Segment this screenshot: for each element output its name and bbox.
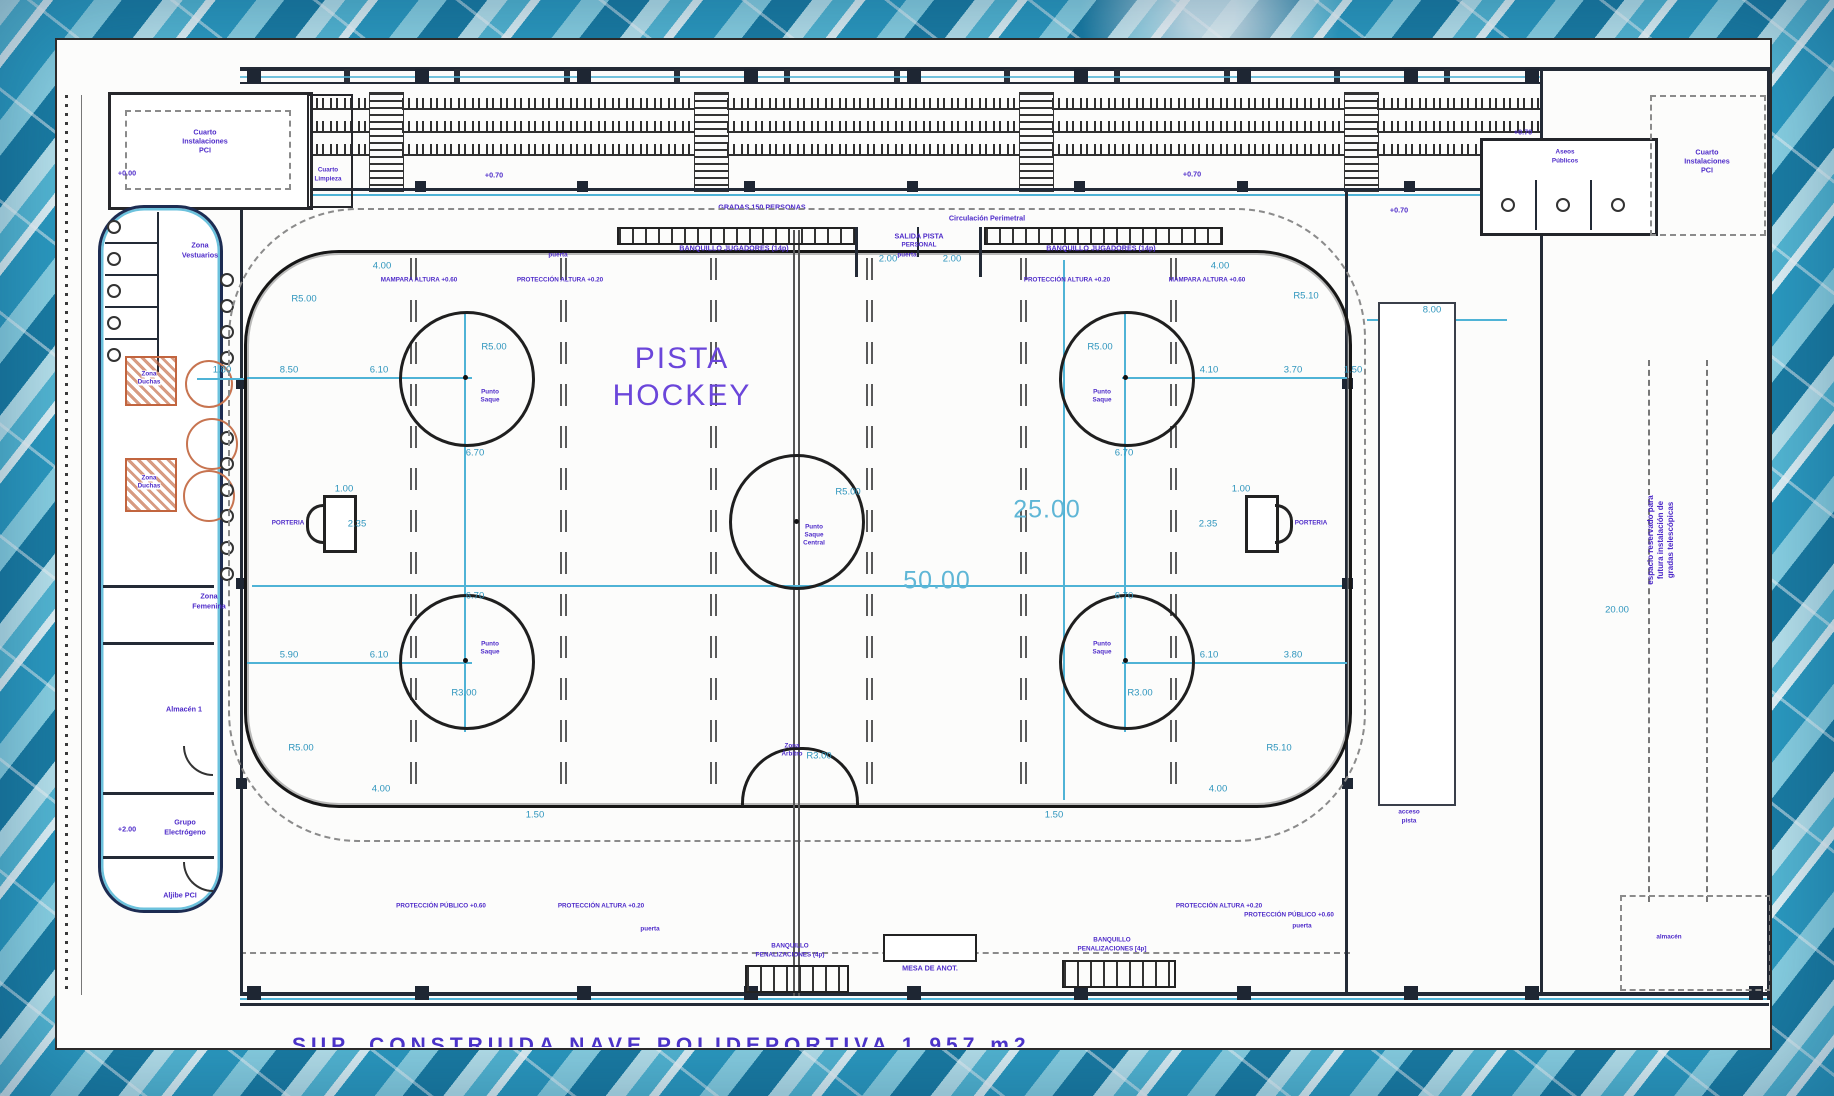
- room-label: PCI: [199, 146, 211, 155]
- access-label: acceso: [1398, 809, 1419, 816]
- faceoff-dot: [463, 375, 468, 380]
- dim-label: 4.00: [373, 261, 392, 272]
- room-label: Femenina: [192, 602, 226, 611]
- seat-row: [402, 98, 694, 110]
- level-label: +0.70: [1183, 170, 1201, 179]
- dim-label: 3.70: [1284, 365, 1303, 376]
- zone-line: [560, 258, 567, 794]
- access-label: pista: [1402, 818, 1417, 825]
- column: [744, 69, 758, 83]
- bench-label: PENALIZACIONES [4p]: [1078, 946, 1147, 953]
- rink-title-line1: PISTA: [547, 340, 817, 377]
- dim-line-25: [1063, 260, 1065, 800]
- column: [1525, 69, 1539, 83]
- room-label: Cuarto: [1695, 148, 1718, 157]
- penalty-bench: [1062, 960, 1176, 988]
- door-label: puerta: [897, 252, 916, 259]
- door-label: puerta: [548, 252, 567, 259]
- left-wing-shell: [98, 205, 223, 913]
- faceoff-label: Punto: [1093, 641, 1111, 648]
- stall-wall: [105, 274, 157, 276]
- dim-label: 2.35: [348, 519, 367, 530]
- faceoff-dot: [463, 658, 468, 663]
- toilet-icon: [1556, 198, 1570, 212]
- door-label: puerta: [1292, 923, 1311, 930]
- players-bench: [617, 227, 856, 245]
- column: [1404, 69, 1418, 83]
- seat-row: [727, 144, 1019, 156]
- zone-line: [1020, 258, 1027, 794]
- glazing-line: [240, 76, 1542, 78]
- column: [1404, 986, 1418, 1000]
- seat-row: [1052, 144, 1344, 156]
- room-label: Cuarto: [193, 128, 216, 137]
- dim-label-length: 50.00: [903, 567, 971, 596]
- dim-label: R5.00: [481, 342, 506, 353]
- dim-label: R3.00: [451, 688, 476, 699]
- dim-label: 2.35: [1199, 519, 1218, 530]
- door-label: puerta: [640, 926, 659, 933]
- column: [415, 181, 426, 192]
- wall: [103, 856, 214, 859]
- dim-label: R3.00: [806, 751, 831, 762]
- room-label: PERSONAL: [902, 242, 937, 249]
- room-label: almacén: [1656, 934, 1681, 941]
- dim-label: R5.10: [1293, 291, 1318, 302]
- column: [907, 69, 921, 83]
- faceoff-label: Punto: [1093, 389, 1111, 396]
- sheet-caption: SUP. CONSTRUIDA NAVE POLIDEPORTIVA 1.957…: [292, 1034, 1492, 1047]
- dim-label: 4.00: [372, 784, 391, 795]
- goal-label: PORTERIA: [1295, 520, 1328, 527]
- board-label: MAMPARA ALTURA +0.60: [381, 277, 458, 284]
- toilet-icon: [1501, 198, 1515, 212]
- column: [1237, 181, 1248, 192]
- bench-label: PENALIZACIONES (4p): [756, 952, 825, 959]
- dim-label: 8.00: [1423, 305, 1442, 316]
- stall-wall: [105, 338, 157, 340]
- faceoff-label: Saque: [481, 649, 500, 656]
- room-label: Zona: [141, 475, 156, 482]
- goal-right: [1245, 495, 1279, 553]
- referee-label: Zona: [784, 743, 799, 750]
- room-label: Electrógeno: [164, 828, 206, 837]
- stand-stair: [694, 92, 729, 192]
- wall-accent: [240, 998, 1769, 1000]
- dim-label: R5.00: [1087, 342, 1112, 353]
- dim-label: 6.70: [1115, 448, 1134, 459]
- wall: [240, 1003, 1769, 1006]
- faceoff-label: Saque: [481, 397, 500, 404]
- goal-label: PORTERIA: [272, 520, 305, 527]
- column: [1525, 986, 1539, 1000]
- note-line: espacio reservado para: [1646, 455, 1656, 625]
- room-label: Zona: [200, 592, 217, 601]
- toilet-icon: [1611, 198, 1625, 212]
- faceoff-label: Punto: [481, 389, 499, 396]
- wall: [1542, 67, 1770, 71]
- rotated-note: espacio reservado para futura instalació…: [1646, 455, 1710, 625]
- dim-label: 1.00: [1232, 484, 1251, 495]
- center-label: Central: [803, 540, 825, 547]
- seat-row: [1052, 98, 1344, 110]
- dim-label: 1.50: [526, 810, 545, 821]
- dim-label: 20.00: [1605, 605, 1629, 616]
- seat-row: [402, 144, 694, 156]
- stall-wall: [1535, 180, 1537, 230]
- pilaster: [236, 778, 247, 789]
- center-dot: [794, 519, 799, 524]
- dim-label: 1.50: [1045, 810, 1064, 821]
- stall-wall: [105, 242, 157, 244]
- dim-label: 8.50: [280, 365, 299, 376]
- column: [1404, 181, 1415, 192]
- wall: [103, 585, 214, 588]
- future-stands-strip: [1648, 360, 1708, 902]
- dim-label: 5.90: [280, 650, 299, 661]
- faceoff-label: Saque: [1093, 397, 1112, 404]
- room-label: Instalaciones: [182, 137, 228, 146]
- stand-stair: [369, 92, 404, 192]
- column: [1074, 69, 1088, 83]
- stall-wall: [105, 306, 157, 308]
- room-label: Instalaciones: [1684, 157, 1730, 166]
- column: [1237, 986, 1251, 1000]
- bench-label: BANQUILLO: [771, 943, 808, 950]
- wall: [103, 642, 214, 645]
- board-label: PROTECCIÓN ALTURA +0.20: [517, 277, 603, 284]
- room-label: Duchas: [138, 483, 161, 490]
- board-label: PROTECCIÓN ALTURA +0.20: [1176, 903, 1262, 910]
- room-dashed-outline: [1620, 895, 1771, 991]
- column: [247, 69, 261, 83]
- dim-label: 6.10: [1200, 650, 1219, 661]
- seat-row: [727, 98, 1019, 110]
- room-label: Aseos: [1556, 149, 1575, 156]
- side-room: [1378, 302, 1456, 806]
- wall: [240, 82, 1542, 84]
- level-label: +0.70: [1390, 206, 1408, 215]
- board-label: PROTECCIÓN PÚBLICO +0.60: [396, 903, 486, 910]
- dim-label: 6.10: [370, 365, 389, 376]
- dim-label: 1.50: [1344, 365, 1363, 376]
- bench-label: BANQUILLO: [1093, 937, 1130, 944]
- wall: [855, 227, 858, 277]
- locker-icon: [220, 273, 234, 287]
- dim-label: 6.70: [466, 591, 485, 602]
- faceoff-label: Punto: [481, 641, 499, 648]
- toilet-icon: [107, 284, 121, 298]
- dim-label: R5.00: [288, 743, 313, 754]
- note-line: futura instalación de: [1656, 455, 1666, 625]
- column: [1237, 69, 1251, 83]
- faceoff-label: Saque: [1093, 649, 1112, 656]
- level-label: +0.70: [1514, 128, 1532, 137]
- column: [907, 181, 918, 192]
- column: [577, 986, 591, 1000]
- room-label: Cuarto: [318, 167, 338, 174]
- dim-label: 2.00: [879, 254, 898, 265]
- column: [415, 986, 429, 1000]
- column: [1074, 986, 1088, 1000]
- zone-line: [710, 258, 717, 794]
- room-limpieza: [307, 94, 353, 208]
- stand-stair: [1019, 92, 1054, 192]
- cad-screenshot: GRADAS 150 PERSONAS Circulación Perimetr…: [0, 0, 1834, 1096]
- wall: [979, 227, 982, 277]
- level-label: +0.70: [485, 171, 503, 180]
- dim-label: 2.00: [943, 254, 962, 265]
- scorers-table: [883, 934, 977, 962]
- rink-title-line2: HOCKEY: [547, 377, 817, 414]
- column: [577, 69, 591, 83]
- room-label: Grupo: [174, 818, 196, 827]
- dim-label-width: 25.00: [1013, 496, 1081, 525]
- column: [907, 986, 921, 1000]
- faceoff-dot: [1123, 375, 1128, 380]
- drawing-sheet: GRADAS 150 PERSONAS Circulación Perimetr…: [55, 38, 1772, 1050]
- board-label: MAMPARA ALTURA +0.60: [1169, 277, 1246, 284]
- board-label: PROTECCIÓN PÚBLICO +0.60: [1244, 912, 1334, 919]
- room-label: Aljibe PCI: [163, 891, 197, 900]
- level-label: +0.00: [118, 169, 136, 178]
- faceoff-dot: [1123, 658, 1128, 663]
- dim-label: 4.00: [1209, 784, 1228, 795]
- room-label: Zona: [141, 371, 156, 378]
- note-line: gradas telescópicas: [1666, 455, 1676, 625]
- stall-wall: [1590, 180, 1592, 230]
- wall: [103, 792, 214, 795]
- dim-label: R3.00: [1127, 688, 1152, 699]
- dim-label: R5.00: [291, 294, 316, 305]
- dimension-line: [81, 95, 82, 995]
- board-label: PROTECCIÓN ALTURA +0.20: [1024, 277, 1110, 284]
- referee-label: Árbitro: [782, 751, 803, 758]
- rink-title: PISTA HOCKEY: [547, 340, 817, 414]
- level-label: +2.00: [118, 825, 136, 834]
- column: [577, 181, 588, 192]
- column: [247, 986, 261, 1000]
- center-label: Punto: [805, 524, 823, 531]
- seat-row: [727, 121, 1019, 133]
- toilet-icon: [107, 348, 121, 362]
- room-label: Vestuarios: [182, 251, 218, 260]
- dim-label: R5.00: [835, 487, 860, 498]
- dim-label: 1.80: [213, 365, 232, 376]
- table-label: MESA DE ANOT.: [902, 964, 958, 973]
- seat-row: [1377, 98, 1542, 110]
- dim-label: R5.10: [1266, 743, 1291, 754]
- dim-label: 6.70: [466, 448, 485, 459]
- zone-line: [866, 258, 873, 794]
- stall-wall: [157, 212, 159, 372]
- dim-label: 3.80: [1284, 650, 1303, 661]
- board-label: PROTECCIÓN ALTURA +0.20: [558, 903, 644, 910]
- room-label: Zona: [191, 241, 208, 250]
- dim-label: 1.00: [335, 484, 354, 495]
- room-label: PCI: [1701, 166, 1713, 175]
- dim-label: 6.10: [370, 650, 389, 661]
- bench-label: BANQUILLO JUGADORES (14p): [1046, 244, 1155, 253]
- room-label: Públicos: [1552, 158, 1578, 165]
- dim-label: 4.00: [1211, 261, 1230, 272]
- column: [415, 69, 429, 83]
- seat-row: [402, 121, 694, 133]
- room-label: Duchas: [138, 379, 161, 386]
- dim-line: [197, 378, 244, 380]
- column: [1074, 181, 1085, 192]
- dimension-tick-strip: [65, 95, 68, 995]
- stand-stair: [1344, 92, 1379, 192]
- seat-row: [1052, 121, 1344, 133]
- penalty-bench: [745, 965, 849, 993]
- room-label: Limpieza: [315, 176, 342, 183]
- center-label: Saque: [805, 532, 824, 539]
- room-label: Almacén 1: [166, 705, 202, 714]
- bench-label: BANQUILLO JUGADORES (14p): [679, 244, 788, 253]
- toilet-icon: [107, 316, 121, 330]
- toilet-icon: [107, 252, 121, 266]
- wall: [1767, 67, 1770, 1000]
- column: [744, 181, 755, 192]
- toilet-icon: [107, 220, 121, 234]
- dim-label: 4.10: [1200, 365, 1219, 376]
- players-bench: [984, 227, 1223, 245]
- dim-label: 6.70: [1115, 591, 1134, 602]
- room-label: SALIDA PISTA: [894, 232, 943, 241]
